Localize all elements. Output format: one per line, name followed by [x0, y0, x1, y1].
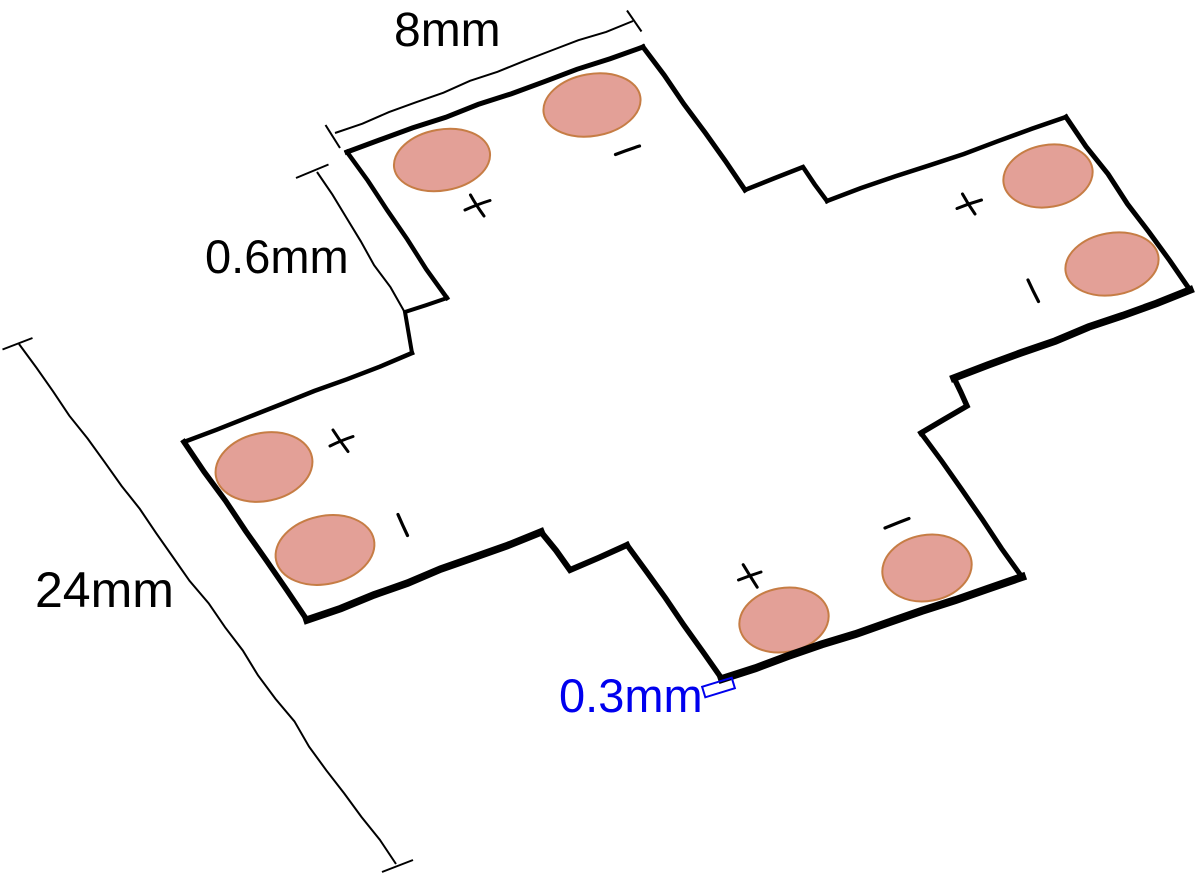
svg-text:24mm: 24mm — [35, 562, 174, 618]
svg-text:0.6mm: 0.6mm — [205, 230, 349, 283]
svg-text:0.3mm: 0.3mm — [559, 669, 703, 722]
svg-text:8mm: 8mm — [394, 4, 501, 57]
